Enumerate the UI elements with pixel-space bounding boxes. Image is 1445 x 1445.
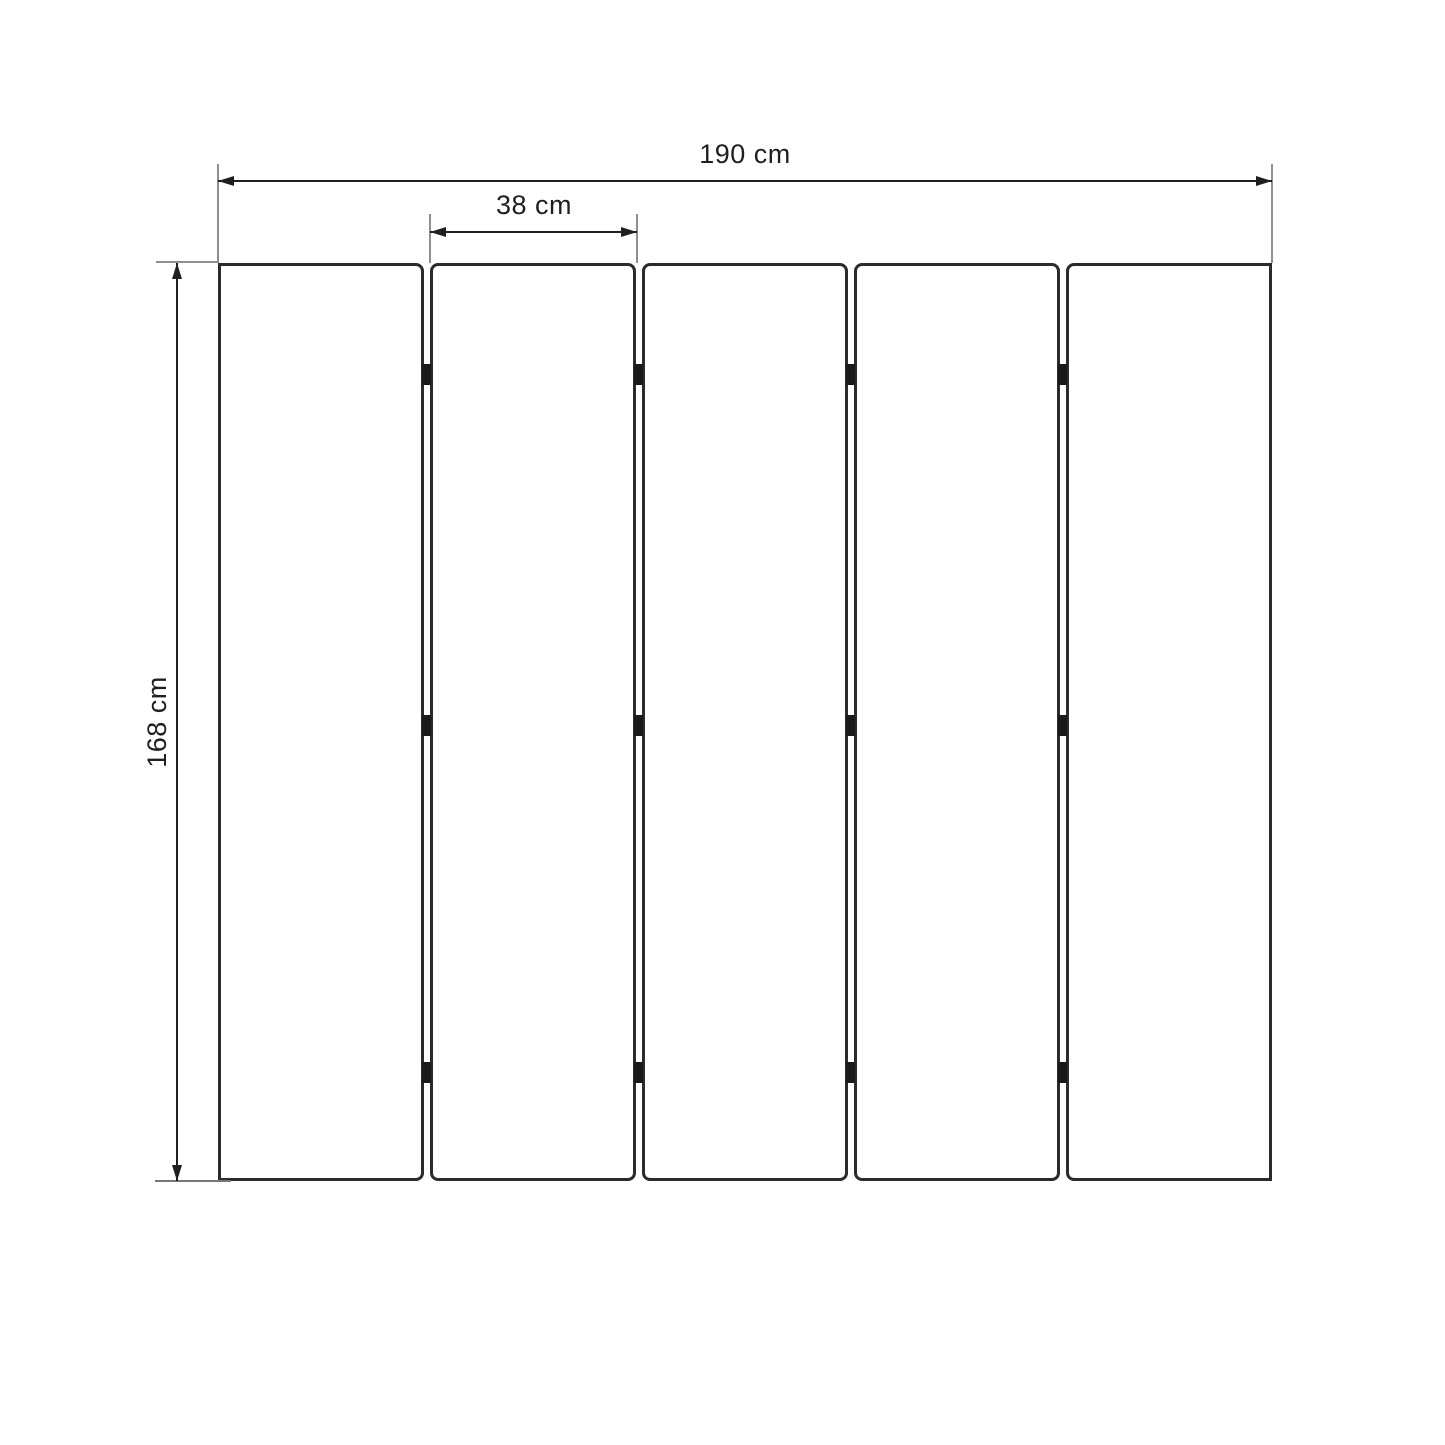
hinge	[634, 1062, 643, 1083]
dimension-label-panel-width: 38 cm	[384, 190, 684, 221]
panel-3	[642, 263, 848, 1181]
panel-5	[1066, 263, 1272, 1181]
hinge	[634, 364, 643, 385]
hinge	[422, 715, 431, 736]
extension-line	[156, 261, 218, 263]
dimension-line-panel-width	[430, 231, 637, 233]
arrowhead-down-icon	[172, 1165, 182, 1181]
arrowhead-right-icon	[1256, 176, 1272, 186]
panel-4	[854, 263, 1060, 1181]
hinge	[422, 1062, 431, 1083]
extension-line	[429, 214, 431, 263]
extension-line	[636, 214, 638, 263]
hinge	[846, 1062, 855, 1083]
hinge	[1058, 715, 1067, 736]
arrowhead-left-icon	[430, 227, 446, 237]
hinge	[634, 715, 643, 736]
panel-2	[430, 263, 636, 1181]
hinge	[1058, 364, 1067, 385]
hinge	[422, 364, 431, 385]
arrowhead-left-icon	[218, 176, 234, 186]
diagram-canvas: 190 cm 38 cm 168 cm	[0, 0, 1445, 1445]
hinge	[846, 715, 855, 736]
hinge	[846, 364, 855, 385]
dimension-label-height: 168 cm	[140, 572, 174, 872]
dimension-line-height	[176, 263, 178, 1181]
arrowhead-up-icon	[172, 263, 182, 279]
extension-line	[155, 1180, 231, 1182]
dimension-label-total-width: 190 cm	[595, 139, 895, 170]
arrowhead-right-icon	[621, 227, 637, 237]
hinge	[1058, 1062, 1067, 1083]
panel-1	[218, 263, 424, 1181]
dimension-line-total-width	[218, 180, 1272, 182]
